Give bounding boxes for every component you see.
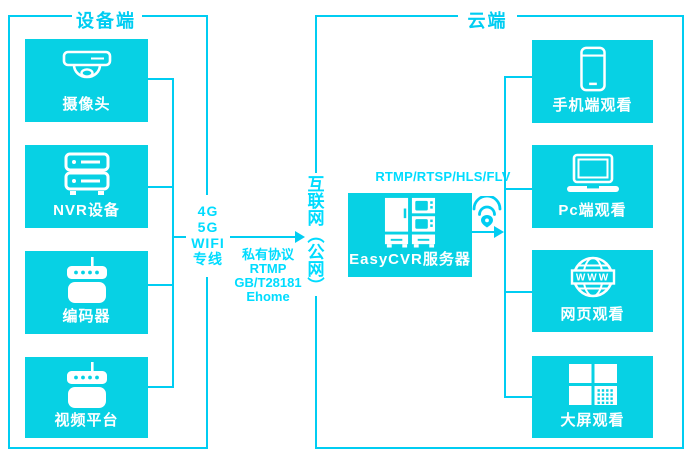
access-line-5g: 5G <box>177 219 239 235</box>
globe-www-icon: WWW <box>565 249 621 303</box>
viewer-bus-line <box>504 76 506 398</box>
encoder-icon <box>61 251 113 305</box>
node-label: 视频平台 <box>54 409 118 438</box>
cloud-frame-left-lower <box>315 296 317 447</box>
internet-char: 公 <box>308 244 325 261</box>
device-frame-top-right <box>142 15 208 17</box>
cloud-frame-top-right <box>517 15 684 17</box>
device-frame-right-upper <box>206 15 208 195</box>
node-label: 手机端观看 <box>552 94 632 123</box>
server-rack-icon <box>381 192 439 248</box>
camera-connector-line <box>148 78 173 80</box>
node-label: 大屏观看 <box>560 409 624 438</box>
node-encoder: 编码器 <box>25 251 148 334</box>
cloud-section-title: 云端 <box>455 7 520 33</box>
architecture-diagram: 设备端 云端 4G 5G WIFI 专线 私有协议 RTMP GB/T28181… <box>0 0 689 458</box>
web-connector-line <box>504 291 532 293</box>
node-pc: Pc端观看 <box>532 145 653 228</box>
smartphone-icon <box>576 40 610 94</box>
bigscreen-connector-line <box>504 396 532 398</box>
mobile-connector-line <box>504 76 532 78</box>
globe-banner-text: WWW <box>575 273 609 284</box>
internet-char: 互 <box>308 176 325 193</box>
node-label: 网页观看 <box>560 303 624 332</box>
internet-char: 网 <box>308 210 325 227</box>
node-mobile: 手机端观看 <box>532 40 653 123</box>
access-line-4g: 4G <box>177 203 239 219</box>
dome-camera-icon <box>61 39 113 93</box>
node-web: WWW 网页观看 <box>532 250 653 332</box>
arrow-server-to-viewers-head <box>494 226 504 238</box>
cloud-frame-right <box>682 15 684 449</box>
arrow-device-to-internet-line <box>230 236 296 238</box>
node-camera: 摄像头 <box>25 39 148 122</box>
node-easycvr-server: EasyCVR服务器 <box>348 193 472 277</box>
device-section-title: 设备端 <box>71 7 141 33</box>
node-label: 编码器 <box>62 305 110 334</box>
pc-connector-line <box>504 188 532 190</box>
arrow-server-to-viewers-line <box>472 231 496 233</box>
node-label: NVR设备 <box>53 199 120 228</box>
node-video-platform: 视频平台 <box>25 357 148 438</box>
node-nvr: NVR设备 <box>25 145 148 228</box>
node-bigscreen: 大屏观看 <box>532 356 653 438</box>
device-frame-right-lower <box>206 277 208 449</box>
internet-public-network-label: 互 联 网 ︵ 公 网 ︶ <box>304 176 328 295</box>
stream-protocols-label: RTMP/RTSP/HLS/FLV <box>368 169 518 184</box>
video-platform-connector-line <box>148 386 173 388</box>
internet-char: 网 <box>308 261 325 278</box>
nvr-icon <box>61 145 113 199</box>
cloud-frame-bottom <box>315 447 684 449</box>
nvr-connector-line <box>148 186 173 188</box>
grid-wall-icon <box>568 356 618 409</box>
device-frame-top-left <box>8 15 72 17</box>
device-frame-left <box>8 15 10 449</box>
cloud-frame-top-left <box>315 15 458 17</box>
device-frame-bottom <box>8 447 208 449</box>
internet-char: ︶ <box>308 278 325 295</box>
node-label: EasyCVR服务器 <box>349 248 471 277</box>
wifi-pin-icon <box>470 196 504 228</box>
internet-char: 联 <box>308 193 325 210</box>
encoder-connector-line <box>148 284 173 286</box>
node-label: Pc端观看 <box>558 199 626 228</box>
cloud-frame-left-upper <box>315 15 317 173</box>
internet-char: ︵ <box>308 227 325 244</box>
device-bus-line <box>172 78 174 388</box>
video-platform-icon <box>61 357 113 409</box>
node-label: 摄像头 <box>62 93 110 122</box>
laptop-icon <box>565 145 621 199</box>
